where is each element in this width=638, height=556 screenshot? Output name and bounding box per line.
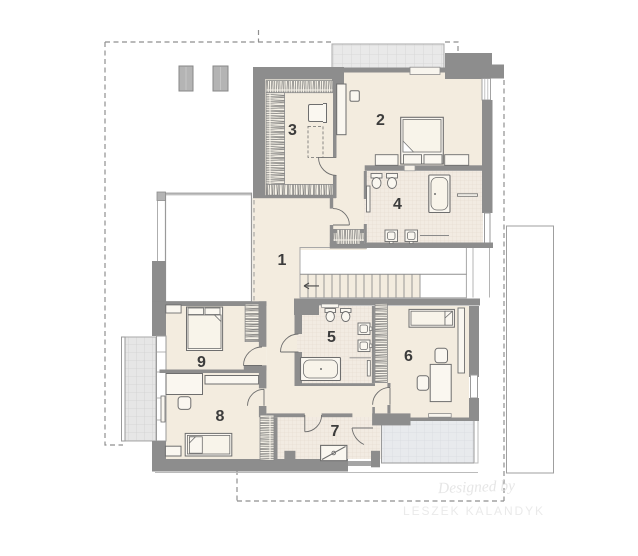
svg-text:8: 8 — [216, 408, 225, 425]
svg-text:6: 6 — [404, 348, 413, 365]
svg-text:5: 5 — [327, 329, 336, 346]
svg-text:1: 1 — [278, 252, 287, 269]
svg-text:3: 3 — [288, 122, 297, 139]
svg-text:7: 7 — [331, 423, 340, 440]
svg-text:9: 9 — [197, 354, 206, 371]
svg-text:2: 2 — [376, 112, 385, 129]
svg-text:Designed by: Designed by — [437, 477, 516, 497]
svg-text:LESZEK KALANDYK: LESZEK KALANDYK — [403, 504, 545, 518]
svg-text:4: 4 — [393, 196, 402, 213]
